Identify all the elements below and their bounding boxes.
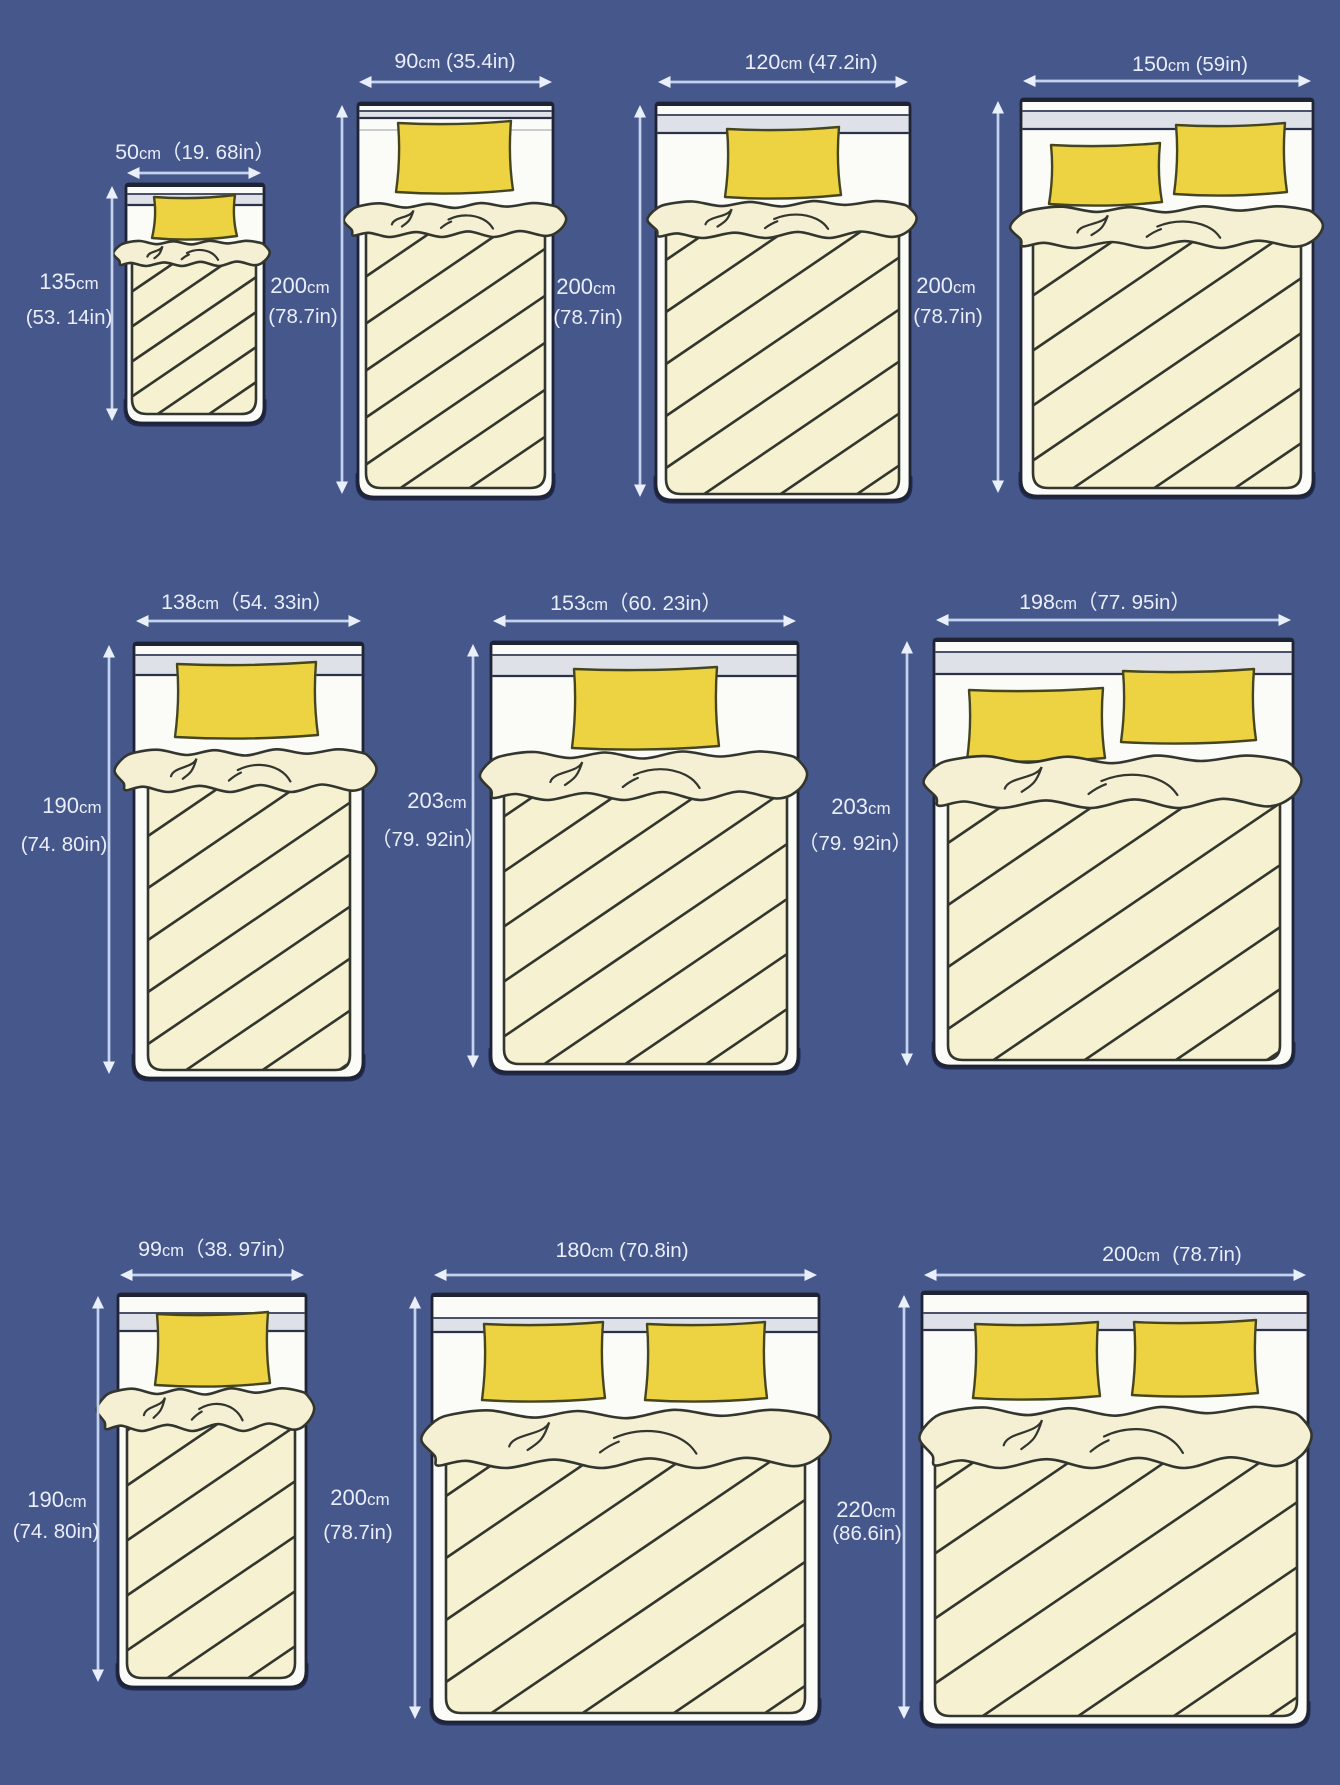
svg-text:180cm (70.8in): 180cm (70.8in): [555, 1238, 688, 1262]
svg-text:138cm（54. 33in）: 138cm（54. 33in）: [161, 590, 333, 614]
svg-text:(78.7in): (78.7in): [553, 306, 623, 329]
svg-text:（79. 92in）: （79. 92in）: [371, 828, 485, 851]
svg-text:（79. 92in）: （79. 92in）: [798, 832, 912, 855]
svg-text:153cm（60. 23in）: 153cm（60. 23in）: [550, 591, 722, 615]
svg-text:(74. 80in): (74. 80in): [21, 833, 108, 856]
svg-text:(78.7in): (78.7in): [1172, 1243, 1242, 1266]
svg-text:150cm (59in): 150cm (59in): [1132, 52, 1248, 76]
svg-text:(78.7in): (78.7in): [913, 305, 983, 328]
svg-text:(86.6in): (86.6in): [832, 1522, 902, 1545]
svg-text:120cm (47.2in): 120cm (47.2in): [744, 50, 877, 74]
svg-text:198cm（77. 95in）: 198cm（77. 95in）: [1019, 590, 1191, 614]
svg-text:90cm (35.4in): 90cm (35.4in): [394, 49, 515, 73]
svg-text:(78.7in): (78.7in): [268, 305, 338, 328]
svg-text:(74. 80in): (74. 80in): [13, 1520, 100, 1543]
svg-text:(78.7in): (78.7in): [323, 1521, 393, 1544]
svg-text:(53. 14in): (53. 14in): [26, 306, 113, 329]
